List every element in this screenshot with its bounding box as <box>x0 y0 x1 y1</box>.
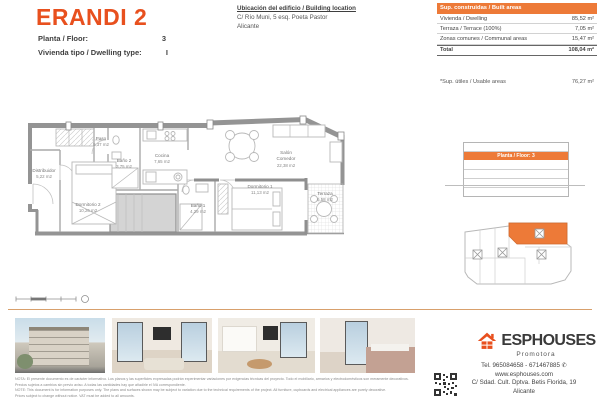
photo-building-exterior <box>15 318 105 373</box>
table-row: Vivienda / Dwelling 85,52 m² <box>437 14 597 24</box>
room-label-salon: Salón <box>280 150 292 155</box>
svg-text:11,13 m2: 11,13 m2 <box>251 190 270 195</box>
areas-table: Sup. construidas / Built areas Vivienda … <box>437 3 597 87</box>
row-value: 15,47 m² <box>572 36 594 42</box>
usable-areas-row: *Sup. útiles / Usable areas 76,27 m² <box>437 78 597 87</box>
dwelling-type-label: Vivienda tipo / Dwelling type: <box>38 48 142 57</box>
page-title: ERANDI 2 <box>36 4 147 31</box>
floor-label: Planta / Floor: <box>38 34 88 43</box>
dwelling-type-value: I <box>166 48 168 57</box>
address-line: C/ Sdad. Cult. Dptva. Betis Florida, 19 <box>448 379 600 388</box>
row-label: Vivienda / Dwelling <box>440 16 487 22</box>
photo-living-room <box>112 318 212 373</box>
scale-bar <box>16 296 89 303</box>
svg-text:5,22 m2: 5,22 m2 <box>36 174 52 179</box>
legal-line-en2: Prices subject to change without notice.… <box>15 394 431 400</box>
svg-text:3,75 m2: 3,75 m2 <box>116 164 132 169</box>
brand-name: ESPHOUSES <box>501 332 595 350</box>
row-label: Zonas comunes / Communal areas <box>440 36 527 42</box>
photo-kitchen <box>218 318 315 373</box>
furniture <box>72 125 342 230</box>
location-heading: Ubicación del edificio / Building locati… <box>237 4 356 13</box>
floor-indicator-highlight: Planta / Floor: 3 <box>464 152 568 160</box>
legal-line-es1: NOTA: El presente documento es de caráct… <box>15 377 431 383</box>
table-row-total: Total 108,04 m² <box>437 45 597 56</box>
svg-text:22,38 m2: 22,38 m2 <box>277 163 296 168</box>
building-location: Ubicación del edificio / Building locati… <box>237 4 356 31</box>
wardrobe <box>56 129 94 146</box>
svg-text:Comedor: Comedor <box>277 156 296 161</box>
esphouses-house-icon <box>476 331 498 351</box>
room-label-distribuidor: Distribuidor <box>32 168 56 173</box>
row-value: 7,05 m² <box>575 26 594 32</box>
floor-value: 3 <box>162 34 166 43</box>
city-line: Alicante <box>448 388 600 397</box>
room-label-bano2: Baño 2 <box>117 158 132 163</box>
floor-indicator-diagram: Planta / Floor: 3 <box>463 142 569 197</box>
svg-text:4,29 m2: 4,29 m2 <box>190 209 206 214</box>
qr-code <box>433 372 458 397</box>
contact-block: Tel. 965084658 - 671467885 ✆ www.esphous… <box>448 362 600 396</box>
whatsapp-icon: ✆ <box>562 362 567 369</box>
total-value: 108,04 m² <box>569 47 595 53</box>
total-label: Total <box>440 47 453 53</box>
site-plan <box>455 216 580 288</box>
svg-text:5,37 m2: 5,37 m2 <box>93 142 109 147</box>
ground-line <box>445 185 585 186</box>
floor-plan: Distribuidor 5,22 m2 Paso 5,37 m2 Baño 2… <box>10 110 355 310</box>
usable-value: 76,27 m² <box>572 79 594 85</box>
room-label-dormitorio1: Dormitorio 1 <box>247 184 272 189</box>
room-label-dormitorio2: Dormitorio 2 <box>75 202 100 207</box>
svg-text:7,65 m2: 7,65 m2 <box>154 159 170 164</box>
svg-text:10,26 m2: 10,26 m2 <box>79 208 98 213</box>
brand-row: ESPHOUSES <box>472 331 600 351</box>
dwelling-type-row: Vivienda tipo / Dwelling type: I <box>38 48 228 57</box>
table-row: Zonas comunes / Communal areas 15,47 m² <box>437 34 597 44</box>
photo-bedroom <box>320 318 415 373</box>
location-city: Alicante <box>237 22 356 31</box>
room-label-paso: Paso <box>96 136 107 141</box>
svg-text:6,58 m2: 6,58 m2 <box>317 197 333 202</box>
table-row: Terraza / Terrace (100%) 7,05 m² <box>437 24 597 34</box>
legal-line-en1: NOTE: This document is for information p… <box>15 388 431 394</box>
room-label-terraza: Terraza <box>317 191 333 196</box>
room-label-cocina: Cocina <box>155 153 170 158</box>
floor-row: Planta / Floor: 3 <box>38 34 228 43</box>
row-label: Terraza / Terrace (100%) <box>440 26 501 32</box>
room-label-bano1: Baño 1 <box>191 203 206 208</box>
stair-core <box>110 194 176 232</box>
areas-table-header: Sup. construidas / Built areas <box>437 3 597 14</box>
row-value: 85,52 m² <box>572 16 594 22</box>
location-street: C/ Río Muni, 5 esq. Poeta Pastor <box>237 13 356 22</box>
north-symbol <box>82 296 89 303</box>
separator-line <box>8 309 592 310</box>
usable-label: *Sup. útiles / Usable areas <box>440 79 506 85</box>
brochure-page: ERANDI 2 Planta / Floor: 3 Vivienda tipo… <box>0 0 600 400</box>
website-link: www.esphouses.com <box>448 371 600 380</box>
brand-subtitle: Promotora <box>472 351 600 358</box>
phone-line: Tel. 965084658 - 671467885 ✆ <box>448 362 600 371</box>
legal-notes: NOTA: El presente documento es de caráct… <box>15 377 431 399</box>
